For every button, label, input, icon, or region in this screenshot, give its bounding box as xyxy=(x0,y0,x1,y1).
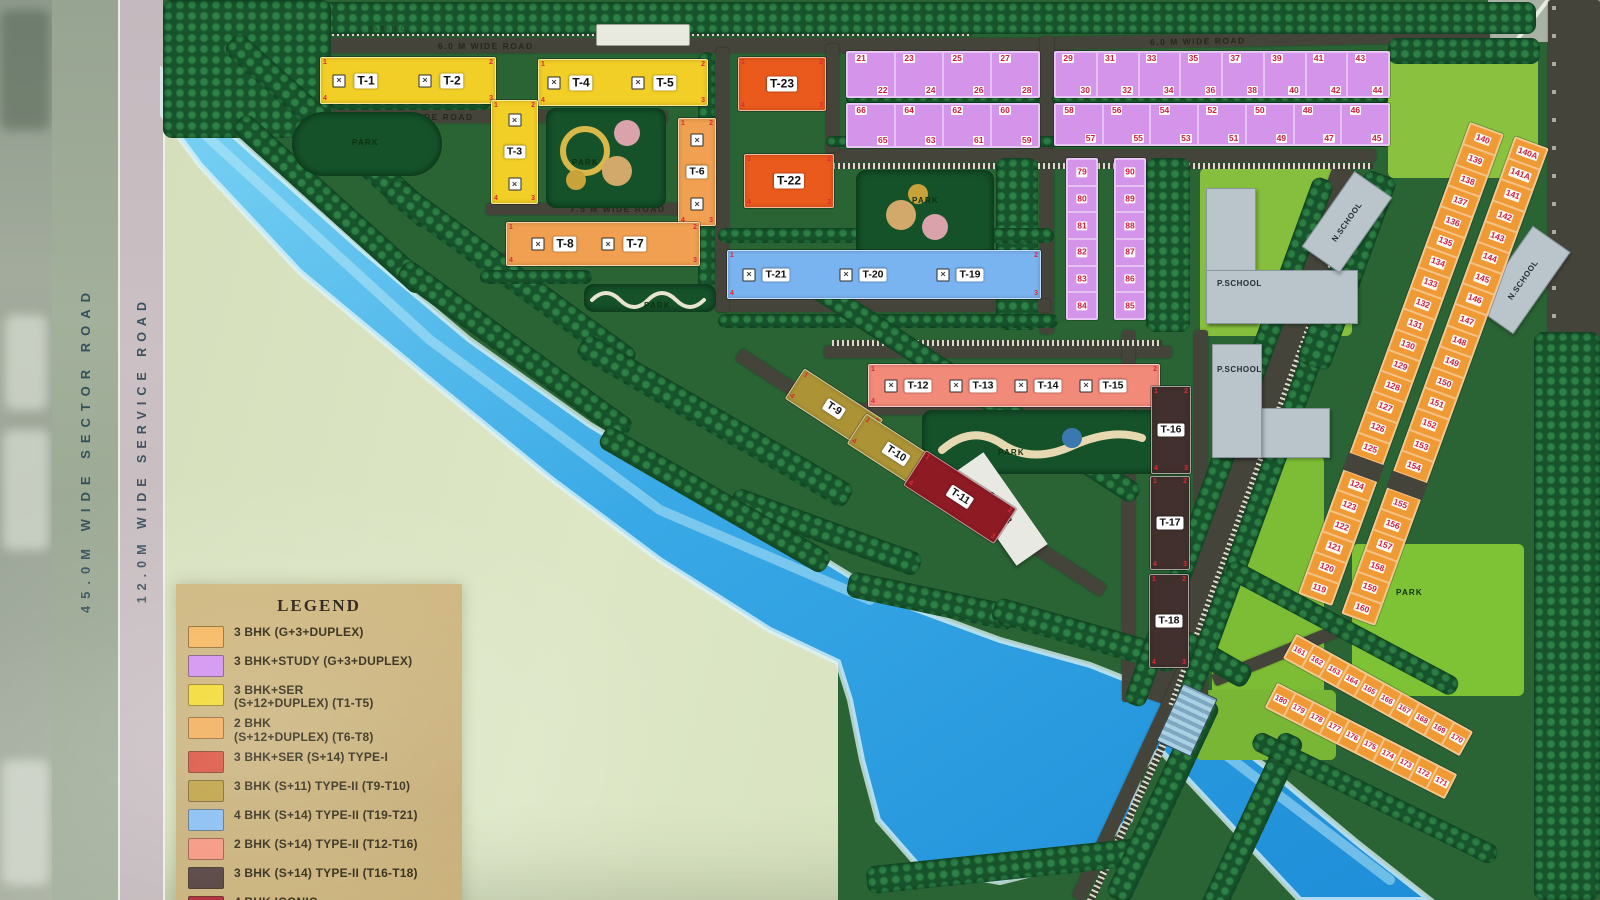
corner-digit: 2 xyxy=(1034,252,1038,259)
plot: 80 xyxy=(1067,186,1097,213)
tower-t6: 1234T-6✕✕ xyxy=(678,118,716,226)
tower-label: T-16 xyxy=(1157,423,1184,436)
plot-number: 171 xyxy=(1433,775,1450,789)
plot-number: 124 xyxy=(1348,479,1366,493)
plot-pair: 2930 xyxy=(1055,52,1097,97)
corner-digit: 2 xyxy=(1182,576,1186,583)
plot-number: 35 xyxy=(1188,54,1199,63)
corner-digit: 3 xyxy=(709,217,713,224)
corner-digit: 1 xyxy=(871,366,875,373)
tower-label: T-23 xyxy=(767,77,797,92)
plot-number: 147 xyxy=(1458,313,1476,327)
corner-digit: 1 xyxy=(1152,576,1156,583)
plot-number: 145 xyxy=(1473,272,1491,286)
p-school-building: P.SCHOOL xyxy=(1212,344,1262,458)
plot-number: 140A xyxy=(1516,145,1540,161)
corner-digit: 1 xyxy=(864,417,871,425)
legend-swatch xyxy=(188,838,224,860)
plot-number: 177 xyxy=(1326,720,1343,734)
plot-number: 80 xyxy=(1076,194,1087,203)
plot-number: 155 xyxy=(1391,497,1409,511)
plot-pair: 3536 xyxy=(1180,52,1222,97)
unit-marker-icon: ✕ xyxy=(1015,379,1028,392)
legend-item: 2 BHK (S+14) TYPE-II (T12-T16) xyxy=(188,838,450,860)
tower-label: T-4 xyxy=(569,75,592,90)
plot-number: 139 xyxy=(1466,153,1484,167)
plot-number: 173 xyxy=(1397,757,1414,771)
road xyxy=(824,346,1172,358)
plot-number: 134 xyxy=(1429,256,1447,270)
plot-number: 65 xyxy=(877,136,888,145)
plot-block: 29303132333435363738394041424344 xyxy=(1054,51,1390,98)
plot-number: 41 xyxy=(1313,54,1324,63)
plot-number: 154 xyxy=(1405,459,1423,473)
trees xyxy=(1146,158,1190,332)
plot-number: 168 xyxy=(1413,712,1430,726)
legend-item: 2 BHK (S+12+DUPLEX) (T6-T8) xyxy=(188,717,450,743)
tower-label: T-9 xyxy=(822,398,847,421)
tower-t16: 1234T-16 xyxy=(1151,386,1191,474)
corner-digit: 3 xyxy=(701,97,705,104)
legend-item: 4 BHK ICONIC (S+10+DUPLEX) (T11) xyxy=(188,896,450,900)
plot-number: 31 xyxy=(1104,54,1115,63)
corner-digit: 4 xyxy=(741,102,745,109)
corner-digit: 4 xyxy=(730,290,734,297)
plot-number: 33 xyxy=(1146,54,1157,63)
tower-t18: 1234T-18 xyxy=(1149,574,1189,668)
tower-t3: 1234T-3✕✕ xyxy=(491,100,538,204)
plot-number: 123 xyxy=(1340,499,1358,513)
tower-t12-t13-t14-t15: 1234T-12✕T-13✕T-14✕T-15✕ xyxy=(868,364,1160,407)
tower-label: T-13 xyxy=(969,379,996,392)
n-school-label: N.SCHOOL xyxy=(1330,200,1364,243)
trees xyxy=(1388,38,1540,64)
tower-t22: 1234T-22 xyxy=(744,154,834,208)
plot-number: 161 xyxy=(1291,644,1308,658)
corner-digit: 3 xyxy=(819,102,823,109)
legend-item-label: 4 BHK (S+14) TYPE-II (T19-T21) xyxy=(234,809,418,822)
plot-number: 127 xyxy=(1376,400,1394,414)
unit-marker-icon: ✕ xyxy=(508,178,521,191)
road-label: 6.0 M WIDE ROAD xyxy=(1150,35,1246,47)
corner-digit: 2 xyxy=(1153,366,1157,373)
plot-number: 88 xyxy=(1124,221,1135,230)
corner-digit: 1 xyxy=(1153,478,1157,485)
plot-number: 131 xyxy=(1406,317,1424,331)
plot-pair: 5049 xyxy=(1246,104,1294,145)
corner-digit: 1 xyxy=(494,102,498,109)
plot-number: 54 xyxy=(1159,106,1170,115)
plot-pair: 6059 xyxy=(991,104,1039,147)
park-ornament xyxy=(922,214,948,240)
plot-number: 122 xyxy=(1333,520,1351,534)
plot-number: 128 xyxy=(1384,379,1402,393)
corner-digit: 2 xyxy=(489,59,493,66)
plot-number: 149 xyxy=(1443,355,1461,369)
p-school-label: P.SCHOOL xyxy=(1217,279,1262,288)
unit-marker-icon: ✕ xyxy=(691,134,704,147)
plot-number: 141 xyxy=(1503,188,1521,202)
plot-number: 172 xyxy=(1415,766,1432,780)
tower-label: T-12 xyxy=(904,379,931,392)
tower-label: T-8 xyxy=(553,237,576,252)
road-label: 6.0 M WIDE ROAD xyxy=(438,41,534,51)
plot-number: 162 xyxy=(1308,654,1325,668)
plot-number: 22 xyxy=(877,86,888,95)
plot-number: 24 xyxy=(925,86,936,95)
plot-number: 160 xyxy=(1353,601,1371,615)
plot-pair: 5453 xyxy=(1150,104,1198,145)
legend-swatch xyxy=(188,867,224,889)
road xyxy=(1040,36,1054,334)
unit-marker-icon: ✕ xyxy=(950,379,963,392)
tower-t8-t7: 1234T-8✕T-7✕ xyxy=(506,222,700,266)
legend-item-label: 3 BHK+SER (S+14) TYPE-I xyxy=(234,751,388,764)
park-ornament xyxy=(602,156,632,186)
plot-number: 178 xyxy=(1308,711,1325,725)
corner-digit: 4 xyxy=(541,97,545,104)
plot-pair: 5857 xyxy=(1055,104,1103,145)
plot-number: 119 xyxy=(1310,582,1328,596)
legend-item: 3 BHK (G+3+DUPLEX) xyxy=(188,626,450,648)
plot: 84 xyxy=(1067,292,1097,319)
legend-item-label: 3 BHK (G+3+DUPLEX) xyxy=(234,626,364,639)
legend-item-label: 4 BHK ICONIC (S+10+DUPLEX) (T11) xyxy=(234,896,361,900)
tower-t21-t20-t19: 1234T-21✕T-20✕T-19✕ xyxy=(727,250,1041,299)
plot-number: 23 xyxy=(903,54,914,63)
legend-item: 3 BHK+SER (S+14) TYPE-I xyxy=(188,751,450,773)
corner-digit: 3 xyxy=(1182,659,1186,666)
plot-number: 135 xyxy=(1436,235,1454,249)
plot-pair: 3940 xyxy=(1264,52,1306,97)
legend-swatch xyxy=(188,684,224,706)
corner-digit: 1 xyxy=(509,224,513,231)
corner-digit: 4 xyxy=(1154,465,1158,472)
legend-item-label: 3 BHK (S+11) TYPE-II (T9-T10) xyxy=(234,780,410,793)
plot-number: 170 xyxy=(1448,732,1465,746)
legend-item-label: 3 BHK (S+14) TYPE-II (T16-T18) xyxy=(234,867,418,880)
plot-number: 62 xyxy=(951,106,962,115)
tower-t23: 1234T-23 xyxy=(738,57,826,111)
plot-number: 21 xyxy=(855,54,866,63)
corner-digit: 1 xyxy=(1154,388,1158,395)
unit-marker-icon: ✕ xyxy=(419,74,432,87)
corner-digit: 3 xyxy=(1183,561,1187,568)
plot-number: 137 xyxy=(1451,194,1469,208)
corner-digit: 4 xyxy=(850,438,857,446)
plot-number: 34 xyxy=(1163,86,1174,95)
park-area xyxy=(546,108,666,208)
plot-number: 132 xyxy=(1414,297,1432,311)
plot-number: 148 xyxy=(1450,334,1468,348)
unit-marker-icon: ✕ xyxy=(937,268,950,281)
unit-marker-icon: ✕ xyxy=(691,198,704,211)
plot-number: 89 xyxy=(1124,194,1135,203)
tower-label: T-10 xyxy=(881,441,911,467)
plot-number: 36 xyxy=(1205,86,1216,95)
tower-label: T-11 xyxy=(945,484,974,509)
plot-number: 85 xyxy=(1124,301,1135,310)
plot-number: 175 xyxy=(1362,739,1379,753)
corner-digit: 4 xyxy=(788,393,795,401)
tower-label: T-1 xyxy=(354,73,377,88)
plot-number: 179 xyxy=(1290,702,1307,716)
plot-pair: 4142 xyxy=(1306,52,1348,97)
plot: 87 xyxy=(1115,239,1145,266)
legend-item: 3 BHK+STUDY (G+3+DUPLEX) xyxy=(188,655,450,677)
plot: 79 xyxy=(1067,159,1097,186)
plot-number: 58 xyxy=(1063,106,1074,115)
plot-pair: 2728 xyxy=(991,52,1039,97)
plot-pair: 2122 xyxy=(847,52,895,97)
plot-number: 133 xyxy=(1421,276,1439,290)
road-edge-markings xyxy=(1552,6,1556,336)
legend-item: 3 BHK (S+11) TYPE-II (T9-T10) xyxy=(188,780,450,802)
plot-number: 43 xyxy=(1355,54,1366,63)
corner-digit: 3 xyxy=(531,195,535,202)
legend-swatch xyxy=(188,780,224,802)
parking-label: PARKING xyxy=(368,26,407,33)
corner-digit: 3 xyxy=(1184,465,1188,472)
plot-block: 2122232425262728 xyxy=(846,51,1040,98)
plot-number: 51 xyxy=(1228,134,1239,143)
plot-number: 121 xyxy=(1325,540,1343,554)
plot-number: 44 xyxy=(1372,86,1383,95)
plot-block: 908988878685 xyxy=(1114,158,1146,320)
plot-number: 151 xyxy=(1428,397,1446,411)
tower-label: T-22 xyxy=(774,174,804,189)
plot-pair: 6261 xyxy=(943,104,991,147)
plot-number: 125 xyxy=(1361,441,1379,455)
plot: 86 xyxy=(1115,266,1145,293)
corner-digit: 4 xyxy=(907,479,914,487)
unit-marker-icon: ✕ xyxy=(508,114,521,127)
trees xyxy=(480,270,592,284)
plot-number: 141A xyxy=(1508,166,1532,182)
plot-number: 167 xyxy=(1396,702,1413,716)
plot-number: 180 xyxy=(1272,693,1289,707)
tower-label: T-19 xyxy=(956,268,983,281)
plot-number: 138 xyxy=(1459,173,1477,187)
plot-number: 66 xyxy=(855,106,866,115)
park-label: PARK xyxy=(912,196,939,205)
plot-number: 57 xyxy=(1085,134,1096,143)
unit-marker-icon: ✕ xyxy=(840,268,853,281)
plot: 85 xyxy=(1115,292,1145,319)
plot-number: 150 xyxy=(1435,376,1453,390)
plot-number: 166 xyxy=(1378,693,1395,707)
plot-number: 46 xyxy=(1350,106,1361,115)
corner-digit: 1 xyxy=(730,252,734,259)
legend-swatch xyxy=(188,896,224,900)
plot-number: 25 xyxy=(951,54,962,63)
park-ornament xyxy=(566,170,586,190)
trees xyxy=(996,158,1038,330)
corner-digit: 2 xyxy=(531,102,535,109)
plot-block: 798081828384 xyxy=(1066,158,1098,320)
plot-number: 26 xyxy=(973,86,984,95)
plot-number: 140 xyxy=(1474,132,1492,146)
plot-number: 144 xyxy=(1481,251,1499,265)
park-label: PARK xyxy=(572,158,599,167)
plot-pair: 6665 xyxy=(847,104,895,147)
road xyxy=(826,149,1376,162)
corner-digit: 2 xyxy=(1006,507,1013,515)
legend-item: 3 BHK+SER (S+12+DUPLEX) (T1-T5) xyxy=(188,684,450,710)
corner-digit: 2 xyxy=(693,224,697,231)
tower-label: T-2 xyxy=(440,73,463,88)
legend: LEGEND 3 BHK (G+3+DUPLEX)3 BHK+STUDY (G+… xyxy=(176,584,462,900)
corner-digit: 4 xyxy=(871,398,875,405)
plot-number: 120 xyxy=(1318,561,1336,575)
plot-number: 136 xyxy=(1444,215,1462,229)
plot-number: 158 xyxy=(1368,559,1386,573)
plot-number: 63 xyxy=(925,136,936,145)
plot-pair: 3132 xyxy=(1097,52,1139,97)
corner-digit: 2 xyxy=(1183,478,1187,485)
tower-label: T-5 xyxy=(653,75,676,90)
plot-number: 60 xyxy=(999,106,1010,115)
parking-shed xyxy=(596,24,690,46)
plot-number: 37 xyxy=(1229,54,1240,63)
plot-number: 61 xyxy=(973,136,984,145)
unit-marker-icon: ✕ xyxy=(548,76,561,89)
plot-number: 47 xyxy=(1323,134,1334,143)
tower-label: T-6 xyxy=(686,165,707,178)
legend-item: 4 BHK (S+14) TYPE-II (T19-T21) xyxy=(188,809,450,831)
legend-swatch xyxy=(188,809,224,831)
tower-label: T-17 xyxy=(1156,516,1183,529)
tower-t17: 1234T-17 xyxy=(1150,476,1190,570)
legend-item-label: 2 BHK (S+14) TYPE-II (T12-T16) xyxy=(234,838,418,851)
plot-number: 165 xyxy=(1361,683,1378,697)
unit-marker-icon: ✕ xyxy=(743,268,756,281)
plot-block: 6665646362616059 xyxy=(846,103,1040,148)
park-label: PARK xyxy=(644,301,671,310)
corner-digit: 1 xyxy=(747,156,751,163)
corner-digit: 2 xyxy=(1184,388,1188,395)
plot-number: 30 xyxy=(1080,86,1091,95)
tower-t1-t2: 1234T-1✕T-2✕ xyxy=(320,57,496,104)
corner-digit: 4 xyxy=(1152,659,1156,666)
legend-swatch xyxy=(188,626,224,648)
unit-marker-icon: ✕ xyxy=(333,74,346,87)
plot-number: 38 xyxy=(1247,86,1258,95)
plot-number: 146 xyxy=(1465,292,1483,306)
unit-marker-icon: ✕ xyxy=(532,238,545,251)
plot-number: 126 xyxy=(1369,420,1387,434)
plot-number: 32 xyxy=(1121,86,1132,95)
plot-pair: 4645 xyxy=(1341,104,1389,145)
plot-number: 176 xyxy=(1344,729,1361,743)
plot-number: 90 xyxy=(1124,168,1135,177)
plot-number: 159 xyxy=(1361,580,1379,594)
legend-swatch xyxy=(188,751,224,773)
plot-number: 143 xyxy=(1488,230,1506,244)
unit-marker-icon: ✕ xyxy=(1080,379,1093,392)
plot-number: 53 xyxy=(1180,134,1191,143)
plot-number: 52 xyxy=(1206,106,1217,115)
tower-t4-t5: 1234T-4✕T-5✕ xyxy=(538,59,708,106)
plot-pair: 4344 xyxy=(1347,52,1389,97)
plot-block: 5857565554535251504948474645 xyxy=(1054,103,1390,146)
plot-number: 55 xyxy=(1132,134,1143,143)
corner-digit: 2 xyxy=(701,61,705,68)
corner-digit: 4 xyxy=(509,257,513,264)
plot-number: 59 xyxy=(1021,136,1032,145)
plot-number: 27 xyxy=(999,54,1010,63)
corner-digit: 3 xyxy=(827,199,831,206)
plot-number: 42 xyxy=(1330,86,1341,95)
plot-pair: 3334 xyxy=(1139,52,1181,97)
corner-digit: 1 xyxy=(323,59,327,66)
plot-number: 157 xyxy=(1376,539,1394,553)
tower-label: T-7 xyxy=(623,237,646,252)
plot-number: 169 xyxy=(1431,722,1448,736)
plot-number: 174 xyxy=(1379,748,1396,762)
corner-digit: 4 xyxy=(1153,561,1157,568)
plot-number: 142 xyxy=(1496,209,1514,223)
tower-label: T-18 xyxy=(1155,614,1182,627)
plot-number: 29 xyxy=(1062,54,1073,63)
park-label: PARK xyxy=(352,138,379,147)
legend-item: 3 BHK (S+14) TYPE-II (T16-T18) xyxy=(188,867,450,889)
corner-digit: 3 xyxy=(989,533,996,541)
plot-number: 153 xyxy=(1412,438,1430,452)
unit-marker-icon: ✕ xyxy=(632,76,645,89)
unit-marker-icon: ✕ xyxy=(885,379,898,392)
park-ornament xyxy=(614,120,640,146)
legend-item-label: 3 BHK+SER (S+12+DUPLEX) (T1-T5) xyxy=(234,684,374,710)
legend-title: LEGEND xyxy=(188,596,450,616)
plot-number: 130 xyxy=(1399,338,1417,352)
plot-number: 79 xyxy=(1076,168,1087,177)
corner-digit: 2 xyxy=(819,59,823,66)
parking-hatch xyxy=(828,163,1373,169)
plot-number: 82 xyxy=(1076,248,1087,257)
plot-pair: 3738 xyxy=(1222,52,1264,97)
plot-number: 87 xyxy=(1124,248,1135,257)
corner-digit: 4 xyxy=(747,199,751,206)
n-school-label: N.SCHOOL xyxy=(1506,258,1540,301)
p-school-label: P.SCHOOL xyxy=(1217,365,1262,374)
unit-marker-icon: ✕ xyxy=(602,238,615,251)
tower-label: T-3 xyxy=(504,145,525,158)
park-label: PARK xyxy=(1396,588,1423,597)
plot-pair: 4847 xyxy=(1294,104,1342,145)
plot-number: 48 xyxy=(1302,106,1313,115)
corner-digit: 1 xyxy=(541,61,545,68)
corner-digit: 4 xyxy=(323,95,327,102)
plot-number: 163 xyxy=(1326,664,1343,678)
plot-number: 86 xyxy=(1124,274,1135,283)
plot-pair: 5655 xyxy=(1103,104,1151,145)
corner-digit: 1 xyxy=(741,59,745,66)
plot-number: 84 xyxy=(1076,301,1087,310)
plot-number: 28 xyxy=(1021,86,1032,95)
site-plan-photo: 45.0M WIDE SECTOR ROAD 12.0M WIDE SERVIC… xyxy=(0,0,1600,900)
plot-number: 64 xyxy=(903,106,914,115)
plot-pair: 6463 xyxy=(895,104,943,147)
plot-number: 152 xyxy=(1420,417,1438,431)
tower-label: T-14 xyxy=(1034,379,1061,392)
park-path xyxy=(922,410,1160,474)
plot-number: 164 xyxy=(1343,673,1360,687)
plot-number: 39 xyxy=(1271,54,1282,63)
plot-pair: 2324 xyxy=(895,52,943,97)
plot-pair: 2526 xyxy=(943,52,991,97)
corner-digit: 3 xyxy=(693,257,697,264)
